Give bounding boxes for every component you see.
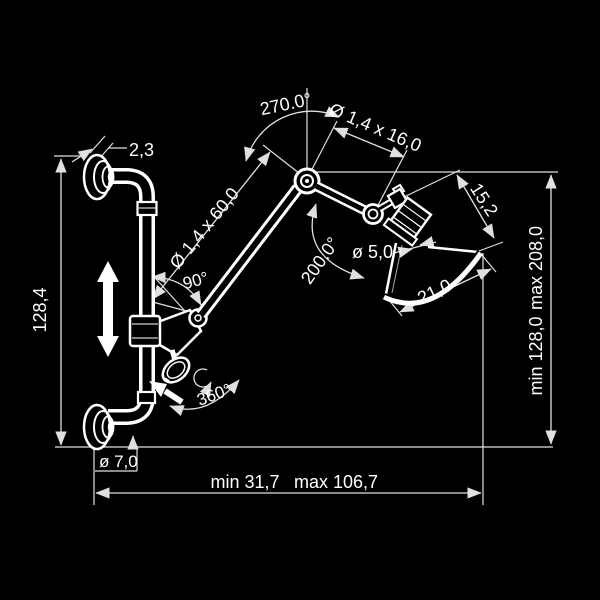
dim-200-head-tilt: 200.0°	[297, 233, 343, 287]
dim-socket-diameter: ø 5,0	[352, 242, 393, 262]
adjust-knob	[158, 353, 194, 388]
drawing-canvas: 2,3 270.0° Ø 1,4 x 16,0 Ø 1,4 x 60,0 15,…	[0, 0, 600, 600]
dim-360-rotation: 360°	[194, 380, 234, 410]
wall-bar	[108, 176, 157, 417]
bar-collar-bottom	[138, 392, 155, 403]
dim-lower-arm-tube: Ø 1,4 x 60,0	[166, 184, 243, 273]
dim-reach-min: min 31,7	[210, 472, 279, 492]
upper-arm	[316, 186, 364, 210]
rotate-loop-icon	[194, 369, 211, 387]
dim-height-max: max 208,0	[526, 226, 546, 310]
dim-tube-diameter: ø 7,0	[99, 452, 138, 471]
dim-height-min: min 128,0	[526, 316, 546, 395]
dim-270-swivel: 270.0°	[258, 89, 313, 119]
lamp-technical-drawing: 2,3 270.0° Ø 1,4 x 16,0 Ø 1,4 x 60,0 15,…	[0, 0, 600, 600]
dim-shade-diameter: 21,0	[414, 275, 454, 308]
dim-flange-thickness: 2,3	[129, 140, 154, 160]
arc-270-swivel	[246, 111, 339, 161]
dim-90-fold: 90°	[181, 268, 211, 293]
slide-updown-arrow-icon	[97, 261, 119, 357]
wall-flange-top	[84, 155, 114, 199]
dim-upper-arm-tube: Ø 1,4 x 16,0	[326, 99, 424, 156]
dim-wall-bar-length: 128,4	[30, 287, 50, 332]
dim-reach-max: max 106,7	[294, 472, 378, 492]
